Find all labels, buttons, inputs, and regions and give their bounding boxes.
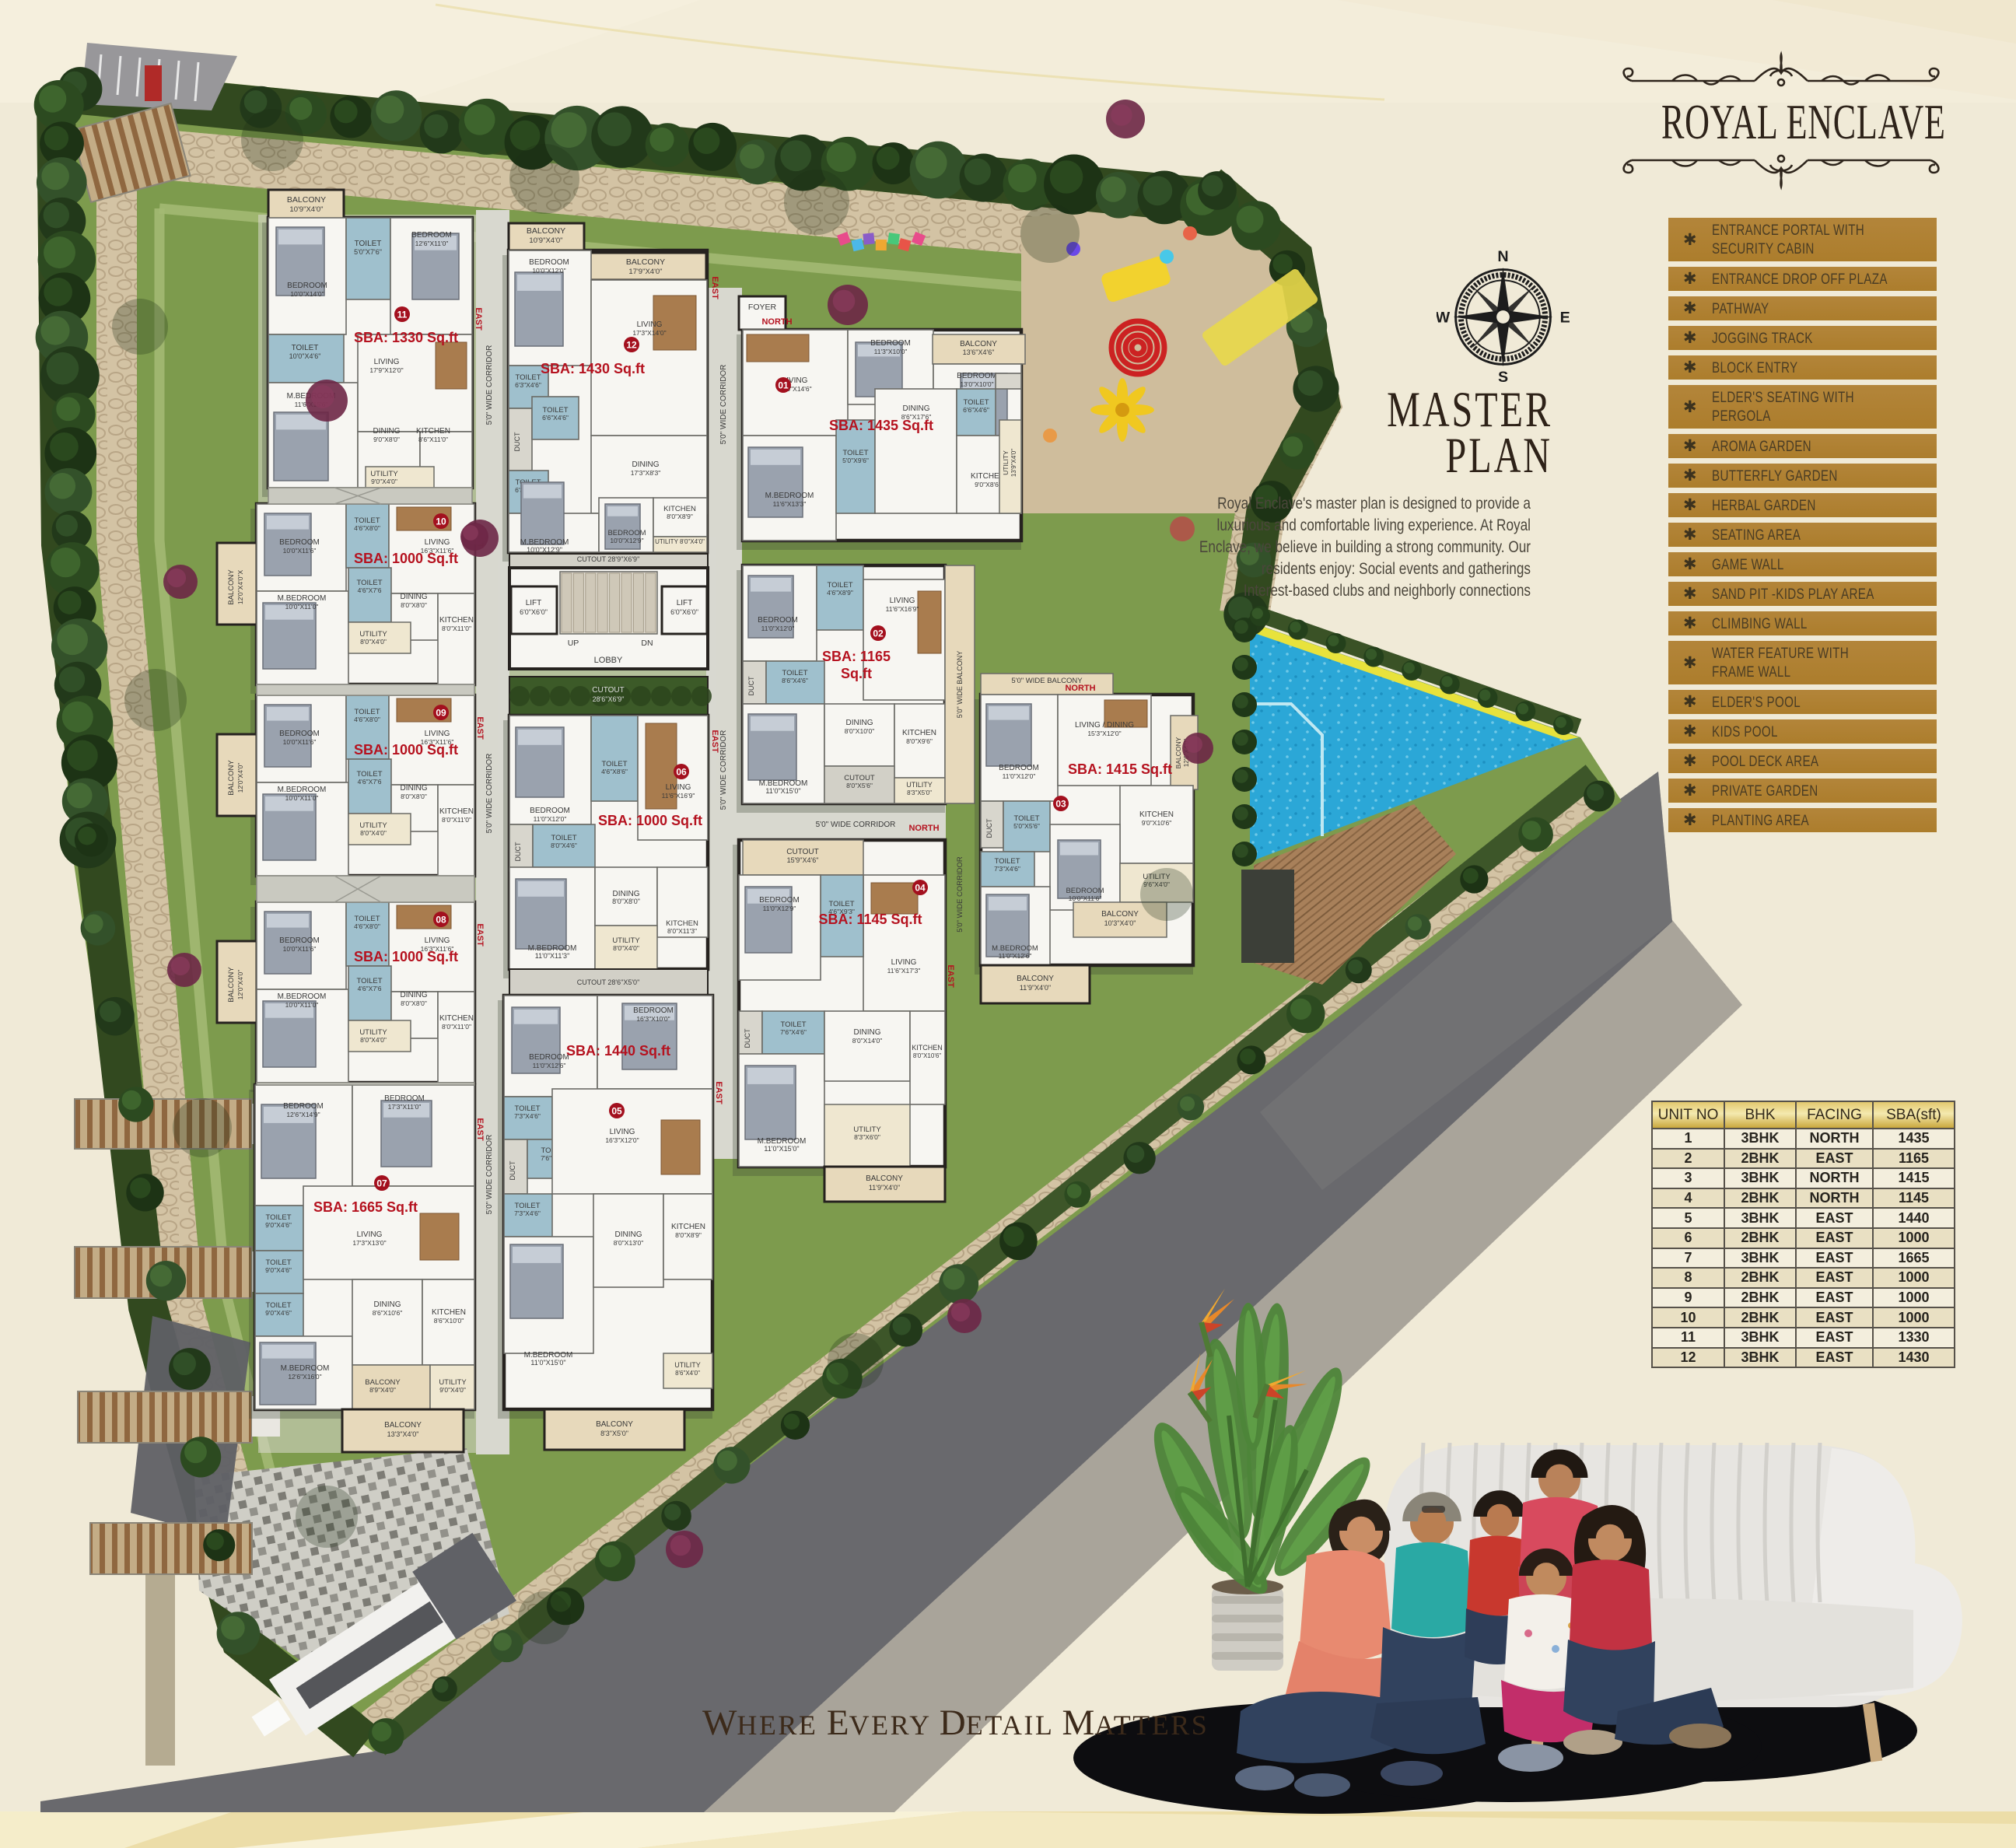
svg-text:02: 02: [873, 628, 884, 639]
svg-text:12'6"X11'0": 12'6"X11'0": [415, 240, 449, 247]
svg-text:11'0"X15'0": 11'0"X15'0": [765, 787, 800, 795]
svg-text:LOBBY: LOBBY: [594, 656, 623, 665]
svg-text:BEDROOM: BEDROOM: [384, 1094, 425, 1103]
svg-text:11'3"X10'0": 11'3"X10'0": [874, 348, 908, 355]
svg-text:13'6"X4'6": 13'6"X4'6": [963, 348, 995, 356]
svg-text:8'6"X4'0": 8'6"X4'0": [675, 1370, 700, 1377]
svg-text:12'6"X14'9": 12'6"X14'9": [286, 1111, 320, 1118]
svg-text:10'9"X4'0": 10'9"X4'0": [289, 205, 323, 214]
svg-text:11'0"X12'6": 11'0"X12'6": [999, 952, 1032, 960]
svg-text:SBA: 1440 Sq.ft: SBA: 1440 Sq.ft: [566, 1043, 670, 1059]
svg-text:6'0"X6'0": 6'0"X6'0": [520, 608, 548, 616]
svg-text:EAST: EAST: [475, 923, 485, 947]
svg-text:8'3"X5'0": 8'3"X5'0": [600, 1430, 628, 1437]
svg-text:12: 12: [626, 340, 637, 351]
svg-text:SBA: 1000 Sq.ft: SBA: 1000 Sq.ft: [354, 742, 458, 758]
svg-text:BEDROOM: BEDROOM: [529, 258, 569, 267]
svg-text:10'0"X11'6": 10'0"X11'6": [283, 738, 317, 746]
svg-text:17'3"X8'3": 17'3"X8'3": [631, 469, 661, 477]
svg-text:16'3"X10'0": 16'3"X10'0": [636, 1015, 670, 1023]
svg-text:8'0"X8'0": 8'0"X8'0": [401, 793, 427, 800]
svg-text:8'3"X6'0": 8'3"X6'0": [854, 1133, 880, 1141]
svg-text:15'3"X12'0": 15'3"X12'0": [1087, 730, 1121, 737]
svg-text:6'6"X4'6": 6'6"X4'6": [542, 414, 569, 422]
svg-text:13'3"X4'0": 13'3"X4'0": [387, 1430, 419, 1438]
svg-text:UTILITY: UTILITY: [674, 1361, 701, 1369]
svg-text:7'3"X4'6": 7'3"X4'6": [514, 1112, 541, 1120]
svg-text:DINING: DINING: [373, 427, 401, 436]
svg-text:11'6"X16'9": 11'6"X16'9": [662, 792, 695, 800]
svg-text:BALCONY: BALCONY: [866, 1174, 903, 1183]
svg-text:8'0"X11'0": 8'0"X11'0": [442, 1023, 471, 1031]
svg-text:BEDROOM: BEDROOM: [287, 282, 327, 290]
svg-text:KITCHEN: KITCHEN: [439, 1014, 474, 1023]
svg-text:KITCHEN: KITCHEN: [912, 1044, 943, 1052]
svg-text:17'9"X12'0": 17'9"X12'0": [369, 366, 403, 374]
svg-text:M.BEDROOM: M.BEDROOM: [278, 992, 327, 1001]
svg-text:KITCHEN: KITCHEN: [902, 729, 936, 737]
svg-text:8'0"X9'6": 8'0"X9'6": [906, 737, 933, 745]
svg-text:04: 04: [915, 883, 926, 894]
svg-text:4'6"X8'6": 4'6"X8'6": [601, 768, 628, 775]
svg-text:Sq.ft: Sq.ft: [841, 666, 872, 681]
svg-text:NORTH: NORTH: [908, 824, 939, 833]
svg-text:LIVING / DINING: LIVING / DINING: [1075, 721, 1134, 730]
svg-text:SBA: 1435 Sq.ft: SBA: 1435 Sq.ft: [829, 418, 933, 433]
svg-text:TOILET: TOILET: [292, 344, 319, 352]
svg-text:10'0"X12'9": 10'0"X12'9": [610, 537, 643, 544]
svg-text:KITCHEN: KITCHEN: [671, 1223, 705, 1231]
svg-text:8'0"X8'0": 8'0"X8'0": [612, 898, 640, 905]
svg-text:10'0"X4'6": 10'0"X4'6": [289, 352, 321, 360]
svg-text:11'0"X12'6": 11'0"X12'6": [533, 1062, 566, 1069]
svg-text:5'0" WIDE CORRIDOR: 5'0" WIDE CORRIDOR: [719, 730, 728, 810]
svg-text:NORTH: NORTH: [1065, 684, 1095, 693]
svg-text:10'0"X11'0": 10'0"X11'0": [285, 603, 319, 611]
svg-text:8'0"X14'0": 8'0"X14'0": [852, 1037, 883, 1045]
svg-text:4'6"X8'9": 4'6"X8'9": [827, 589, 853, 597]
svg-text:DINING: DINING: [401, 784, 428, 793]
svg-text:E: E: [1560, 309, 1570, 326]
svg-text:CUTOUT: CUTOUT: [592, 686, 624, 695]
svg-text:BEDROOM: BEDROOM: [529, 1053, 569, 1062]
svg-text:8'0"X11'3": 8'0"X11'3": [667, 927, 697, 935]
svg-text:8'6"X11'0": 8'6"X11'0": [418, 436, 448, 443]
svg-text:9'0"X4'0": 9'0"X4'0": [371, 478, 397, 485]
svg-text:11'9"X4'0": 11'9"X4'0": [1020, 984, 1051, 992]
svg-text:NORTH: NORTH: [761, 317, 792, 327]
svg-text:BALCONY: BALCONY: [1174, 737, 1182, 768]
svg-text:10: 10: [436, 516, 446, 527]
svg-text:13'0"X10'0": 13'0"X10'0": [960, 380, 993, 388]
svg-text:FOYER: FOYER: [748, 303, 777, 312]
svg-text:UTILITY 8'0"X4'0": UTILITY 8'0"X4'0": [655, 538, 705, 545]
svg-text:SBA: 1330 Sq.ft: SBA: 1330 Sq.ft: [354, 330, 458, 345]
svg-text:9'0"X10'6": 9'0"X10'6": [1142, 819, 1172, 827]
svg-text:8'0"X10'0": 8'0"X10'0": [845, 727, 875, 735]
svg-text:M.BEDROOM: M.BEDROOM: [278, 594, 327, 603]
svg-text:KITCHEN: KITCHEN: [439, 807, 474, 816]
svg-text:10'3"X4'0": 10'3"X4'0": [1104, 919, 1136, 927]
svg-text:9'0"X4'6": 9'0"X4'6": [265, 1266, 292, 1274]
svg-text:DINING: DINING: [374, 1300, 401, 1309]
svg-text:15'9"X4'6": 15'9"X4'6": [787, 856, 819, 864]
svg-text:4'6"X8'0": 4'6"X8'0": [354, 716, 380, 723]
svg-text:M.BEDROOM: M.BEDROOM: [765, 492, 814, 500]
svg-text:8'6"X10'0": 8'6"X10'0": [434, 1317, 464, 1325]
svg-text:7'3"X4'6": 7'3"X4'6": [994, 865, 1020, 873]
svg-text:5'0" WIDE CORRIDOR: 5'0" WIDE CORRIDOR: [816, 821, 896, 829]
svg-text:5'0" WIDE BALCONY: 5'0" WIDE BALCONY: [956, 651, 964, 718]
svg-text:BALCONY: BALCONY: [384, 1421, 422, 1430]
svg-text:BEDROOM: BEDROOM: [411, 231, 452, 240]
svg-text:DINING: DINING: [903, 404, 930, 413]
svg-text:11'0"X12'9": 11'0"X12'9": [763, 905, 796, 912]
svg-text:SBA: 1000 Sq.ft: SBA: 1000 Sq.ft: [598, 813, 702, 828]
svg-text:BALCONY: BALCONY: [1017, 975, 1054, 983]
svg-text:4'6"X7'6: 4'6"X7'6: [358, 586, 382, 594]
svg-text:11'9"X4'0": 11'9"X4'0": [869, 1184, 900, 1192]
svg-text:DUCT: DUCT: [985, 818, 993, 838]
svg-text:8'0"X11'0": 8'0"X11'0": [442, 625, 471, 632]
svg-text:BALCONY: BALCONY: [626, 257, 665, 267]
svg-text:11'0"X12'0": 11'0"X12'0": [761, 625, 795, 632]
svg-text:BALCONY: BALCONY: [287, 195, 326, 205]
svg-text:6'0"X6'0": 6'0"X6'0": [670, 608, 698, 616]
svg-text:BEDROOM: BEDROOM: [633, 1006, 674, 1015]
svg-text:LIVING: LIVING: [890, 597, 915, 605]
svg-text:LIVING: LIVING: [357, 1230, 383, 1239]
svg-text:LIVING: LIVING: [374, 358, 400, 366]
svg-text:BEDROOM: BEDROOM: [999, 764, 1039, 772]
svg-text:11'0"X12'0": 11'0"X12'0": [1003, 772, 1036, 780]
svg-text:13'9"X4'0": 13'9"X4'0": [1010, 449, 1017, 477]
svg-text:5'0" WIDE CORRIDOR: 5'0" WIDE CORRIDOR: [485, 1135, 494, 1215]
svg-text:9'0"X4'0": 9'0"X4'0": [439, 1386, 466, 1394]
svg-text:4'6"X8'0": 4'6"X8'0": [354, 524, 380, 532]
svg-text:11'0"X15'0": 11'0"X15'0": [764, 1145, 799, 1153]
svg-text:BALCONY: BALCONY: [527, 226, 565, 236]
svg-text:LIVING: LIVING: [425, 538, 450, 547]
svg-text:EAST: EAST: [710, 276, 719, 299]
svg-text:11: 11: [397, 310, 408, 320]
svg-text:DUCT: DUCT: [747, 676, 755, 695]
svg-text:28'6"X6'9": 28'6"X6'9": [593, 695, 625, 703]
svg-text:EAST: EAST: [710, 730, 719, 753]
svg-text:LIFT: LIFT: [526, 599, 542, 607]
svg-text:UP: UP: [568, 639, 579, 648]
svg-text:4'6"X7'6: 4'6"X7'6: [358, 778, 382, 786]
svg-text:SBA: 1430 Sq.ft: SBA: 1430 Sq.ft: [541, 361, 645, 376]
svg-text:06: 06: [676, 767, 687, 778]
svg-text:10'0"X11'6": 10'0"X11'6": [283, 945, 317, 953]
svg-text:BEDROOM: BEDROOM: [279, 538, 320, 547]
svg-text:SBA: 1165: SBA: 1165: [822, 649, 891, 664]
svg-text:8'0"X4'0": 8'0"X4'0": [360, 1036, 387, 1044]
svg-text:11'6"X13'3": 11'6"X13'3": [773, 500, 807, 508]
svg-text:10'0"X11'6": 10'0"X11'6": [1069, 894, 1102, 902]
svg-text:DINING: DINING: [846, 719, 873, 727]
svg-text:5'0" WIDE CORRIDOR: 5'0" WIDE CORRIDOR: [485, 754, 494, 834]
svg-text:11'0"X15'0": 11'0"X15'0": [530, 1359, 565, 1367]
svg-text:10'0"X14'0": 10'0"X14'0": [290, 290, 324, 298]
svg-text:9'0"X4'6": 9'0"X4'6": [265, 1309, 292, 1317]
svg-text:DN: DN: [641, 639, 653, 648]
svg-text:8'0"X10'6": 8'0"X10'6": [913, 1052, 941, 1059]
svg-text:BEDROOM: BEDROOM: [758, 616, 798, 625]
svg-text:KITCHEN: KITCHEN: [439, 616, 474, 625]
svg-text:8'0"X4'0": 8'0"X4'0": [360, 638, 387, 646]
svg-text:EAST: EAST: [714, 1081, 723, 1104]
svg-text:8'6"X10'6": 8'6"X10'6": [373, 1309, 403, 1317]
svg-text:DUCT: DUCT: [744, 1028, 751, 1048]
svg-text:12'0"X4'0": 12'0"X4'0": [236, 970, 244, 1000]
svg-text:12'0"X4'0"X: 12'0"X4'0"X: [236, 570, 244, 605]
svg-text:SBA: 1665 Sq.ft: SBA: 1665 Sq.ft: [313, 1199, 418, 1215]
svg-text:BALCONY: BALCONY: [227, 569, 236, 605]
svg-text:LIVING: LIVING: [425, 936, 450, 945]
svg-text:9'0"X8'6": 9'0"X8'6": [975, 481, 1001, 488]
svg-text:8'0"X8'9": 8'0"X8'9": [667, 513, 693, 520]
svg-text:12'0"X4'0": 12'0"X4'0": [236, 763, 244, 793]
svg-text:10'0"X12'0": 10'0"X12'0": [532, 267, 565, 275]
svg-text:EAST: EAST: [475, 1118, 485, 1141]
svg-text:LIVING: LIVING: [891, 958, 917, 967]
svg-text:8'0"X4'6": 8'0"X4'6": [551, 842, 577, 849]
svg-text:M.BEDROOM: M.BEDROOM: [278, 786, 327, 794]
svg-text:4'6"X7'6: 4'6"X7'6: [358, 985, 382, 992]
svg-text:EAST: EAST: [946, 964, 955, 988]
svg-text:17'3"X14'0": 17'3"X14'0": [632, 329, 666, 337]
svg-text:11'0"X11'3": 11'0"X11'3": [535, 952, 570, 960]
svg-text:8'0"X13'0": 8'0"X13'0": [614, 1239, 644, 1247]
svg-text:11'0"X12'0": 11'0"X12'0": [534, 815, 567, 823]
svg-text:TOILET: TOILET: [355, 240, 382, 248]
svg-text:11'6"X16'9": 11'6"X16'9": [886, 605, 919, 613]
svg-text:SBA: 1145 Sq.ft: SBA: 1145 Sq.ft: [818, 912, 922, 927]
svg-text:BALCONY: BALCONY: [227, 967, 236, 1003]
svg-text:BALCONY: BALCONY: [596, 1420, 633, 1429]
svg-text:10'9"X4'0": 10'9"X4'0": [529, 236, 562, 245]
svg-text:5'0" WIDE CORRIDOR: 5'0" WIDE CORRIDOR: [956, 856, 964, 933]
svg-text:DINING: DINING: [401, 991, 428, 999]
svg-text:SBA: 1000 Sq.ft: SBA: 1000 Sq.ft: [354, 551, 458, 566]
svg-text:5'0" WIDE CORRIDOR: 5'0" WIDE CORRIDOR: [719, 365, 728, 445]
svg-text:8'3"X5'0": 8'3"X5'0": [907, 789, 932, 796]
svg-text:10'0"X11'6": 10'0"X11'6": [283, 547, 317, 555]
svg-text:8'0"X8'9": 8'0"X8'9": [675, 1231, 702, 1239]
svg-text:UTILITY: UTILITY: [906, 781, 933, 789]
svg-text:10'0"X11'0": 10'0"X11'0": [285, 1001, 319, 1009]
svg-text:DINING: DINING: [401, 593, 428, 601]
svg-text:BALCONY: BALCONY: [227, 760, 236, 796]
svg-text:10'0"X11'0": 10'0"X11'0": [285, 794, 319, 802]
svg-text:8'0"X4'0": 8'0"X4'0": [613, 944, 639, 952]
svg-text:8'0"X8'0": 8'0"X8'0": [401, 601, 427, 609]
svg-text:EAST: EAST: [474, 307, 483, 331]
svg-text:07: 07: [376, 1178, 387, 1189]
svg-text:8'0"X4'0": 8'0"X4'0": [360, 829, 387, 837]
svg-text:10'0"X12'9": 10'0"X12'9": [527, 546, 562, 554]
svg-text:01: 01: [778, 380, 789, 391]
svg-text:BEDROOM: BEDROOM: [870, 339, 911, 348]
svg-text:BEDROOM: BEDROOM: [530, 807, 570, 815]
svg-text:LIVING: LIVING: [425, 730, 450, 738]
svg-text:5'0"X7'6": 5'0"X7'6": [354, 248, 382, 256]
svg-text:17'3"X13'0": 17'3"X13'0": [352, 1239, 386, 1247]
svg-text:SBA: 1415 Sq.ft: SBA: 1415 Sq.ft: [1068, 761, 1172, 777]
svg-text:KITCHEN: KITCHEN: [416, 427, 450, 436]
svg-text:BEDROOM: BEDROOM: [957, 372, 997, 380]
svg-text:08: 08: [436, 915, 446, 926]
svg-text:17'9"X4'0": 17'9"X4'0": [628, 268, 662, 276]
svg-text:W: W: [1437, 309, 1451, 326]
svg-text:UTILITY: UTILITY: [1002, 450, 1010, 475]
svg-text:BEDROOM: BEDROOM: [759, 896, 800, 905]
svg-text:8'0"X8'0": 8'0"X8'0": [401, 999, 427, 1007]
svg-text:EAST: EAST: [475, 716, 485, 740]
svg-text:05: 05: [611, 1106, 622, 1117]
svg-text:BEDROOM: BEDROOM: [279, 730, 320, 738]
svg-text:9'0"X8'0": 9'0"X8'0": [373, 436, 400, 443]
svg-text:LIVING: LIVING: [666, 783, 691, 792]
svg-text:KITCHEN: KITCHEN: [432, 1308, 466, 1317]
svg-text:16'3"X12'0": 16'3"X12'0": [605, 1136, 639, 1144]
svg-text:5'0"X5'6": 5'0"X5'6": [1013, 822, 1040, 830]
svg-text:6'6"X4'6": 6'6"X4'6": [963, 406, 989, 414]
svg-text:11'6"X17'3": 11'6"X17'3": [887, 967, 921, 975]
svg-text:09: 09: [436, 708, 446, 719]
svg-text:DINING: DINING: [632, 460, 660, 469]
svg-text:CUTOUT 28'9"X6'9": CUTOUT 28'9"X6'9": [577, 555, 640, 563]
svg-text:17'3"X11'0": 17'3"X11'0": [388, 1103, 422, 1111]
svg-text:CUTOUT 28'6"X5'0": CUTOUT 28'6"X5'0": [577, 978, 640, 986]
svg-text:DINING: DINING: [615, 1230, 642, 1239]
svg-text:DUCT: DUCT: [509, 1160, 516, 1180]
svg-text:CUTOUT: CUTOUT: [786, 848, 818, 856]
svg-text:DUCT: DUCT: [514, 842, 522, 861]
svg-text:7'3"X4'6": 7'3"X4'6": [514, 1209, 541, 1217]
svg-text:N: N: [1497, 250, 1508, 265]
svg-text:03: 03: [1055, 799, 1066, 810]
svg-text:8'6"X4'6": 8'6"X4'6": [782, 677, 808, 684]
svg-text:BEDROOM: BEDROOM: [279, 936, 320, 945]
svg-text:LIFT: LIFT: [677, 599, 693, 607]
svg-text:9'0"X4'6": 9'0"X4'6": [265, 1221, 292, 1229]
svg-text:12'6"X16'0": 12'6"X16'0": [288, 1373, 321, 1381]
svg-text:LIVING: LIVING: [637, 320, 663, 329]
svg-text:BALCONY: BALCONY: [960, 340, 997, 348]
svg-text:7'6"X4'6": 7'6"X4'6": [780, 1028, 807, 1036]
svg-text:6'3"X4'6": 6'3"X4'6": [515, 381, 541, 389]
svg-text:LIVING: LIVING: [610, 1128, 635, 1136]
svg-text:5'0" WIDE CORRIDOR: 5'0" WIDE CORRIDOR: [485, 345, 494, 425]
svg-text:SBA: 1000 Sq.ft: SBA: 1000 Sq.ft: [354, 949, 458, 964]
svg-text:KITCHEN: KITCHEN: [1139, 810, 1174, 819]
svg-text:DUCT: DUCT: [513, 432, 521, 451]
svg-text:8'0"X11'0": 8'0"X11'0": [442, 816, 471, 824]
svg-text:BALCONY: BALCONY: [1101, 910, 1139, 919]
svg-text:M.BEDROOM: M.BEDROOM: [281, 1364, 330, 1373]
svg-text:8'9"X4'0": 8'9"X4'0": [369, 1386, 396, 1394]
svg-text:DINING: DINING: [854, 1028, 881, 1037]
svg-text:BEDROOM: BEDROOM: [283, 1102, 324, 1111]
svg-text:5'0"X9'6": 5'0"X9'6": [842, 457, 869, 464]
svg-text:8'0"X5'6": 8'0"X5'6": [846, 782, 873, 789]
svg-text:4'6"X8'0": 4'6"X8'0": [354, 922, 380, 930]
